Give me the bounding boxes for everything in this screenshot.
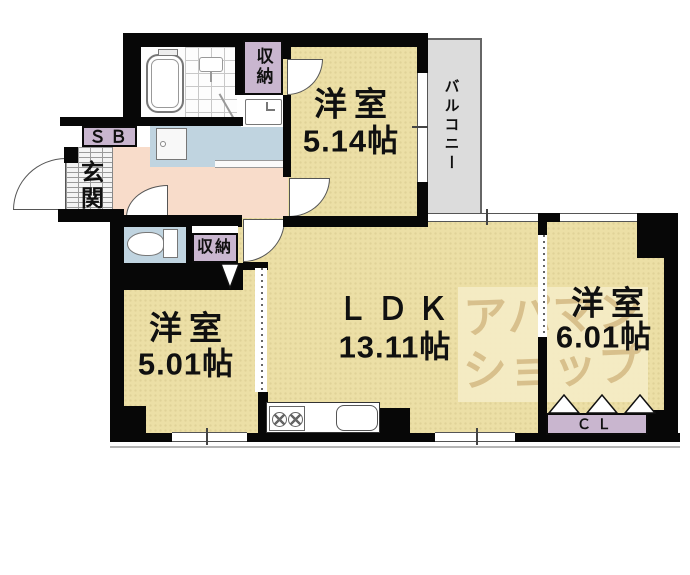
toilet-tank-icon — [163, 229, 178, 258]
washstand-faucet-icon — [266, 102, 275, 111]
partition-501-ldk — [255, 268, 267, 392]
wall-ldk-601-top — [538, 213, 547, 235]
balcony-label: バルコニー — [444, 79, 459, 174]
hallway-floor-main — [150, 167, 288, 218]
wall-bath-bottom — [60, 117, 243, 126]
entrance-door-arc — [13, 158, 66, 210]
floor-plan: アパマン ショップ — [0, 0, 690, 575]
room-514-name: 洋室 — [314, 88, 394, 121]
closet-fold-door-icon-1 — [548, 394, 580, 414]
wall-514-left-a — [283, 33, 291, 59]
storage-upper-label: 収納 — [255, 47, 272, 87]
window-tick-4 — [412, 126, 428, 128]
shoe-box-label: ＳＢ — [89, 129, 131, 146]
closet-fold-door-icon-3 — [624, 394, 656, 414]
closet-label: ＣＬ — [577, 417, 617, 431]
ldk-name: ＬＤＫ — [337, 294, 457, 325]
partition-ldk-601 — [538, 235, 547, 337]
room-501-size: 5.01帖 — [138, 349, 234, 380]
bath-faucet-icon — [158, 49, 178, 56]
window-top-601 — [560, 213, 637, 222]
window-tick-2 — [476, 428, 478, 445]
storage-lower-label: 収納 — [197, 240, 233, 256]
wall-514-balcony-a — [417, 33, 428, 73]
room-501-name: 洋室 — [149, 312, 229, 345]
wall-counter-stub — [380, 408, 410, 437]
storage-lower-fold-door-icon — [220, 263, 240, 289]
window-tick-3 — [486, 209, 488, 225]
wall-entry-left-stub — [64, 147, 78, 163]
stove-icon — [269, 406, 305, 431]
room-601-name: 洋室 — [571, 287, 651, 320]
closet-fold-door-icon-2 — [586, 394, 618, 414]
ldk-size: 13.11帖 — [339, 332, 452, 363]
window-bottom-left — [172, 432, 247, 442]
toilet-bowl-icon — [127, 232, 164, 256]
wall-bottom-1 — [118, 433, 172, 442]
washing-machine-knob — [160, 141, 166, 147]
washstand-icon — [245, 99, 282, 125]
wall-left-upper — [123, 33, 141, 125]
bathtub-icon — [146, 54, 184, 113]
kitchen-sink-icon — [336, 405, 378, 431]
entrance-label: 玄関 — [79, 160, 102, 212]
window-tick-1 — [206, 428, 208, 445]
wall-514-bottom — [283, 216, 428, 227]
room-514-size: 5.14帖 — [303, 126, 399, 157]
room-601-size: 6.01帖 — [556, 322, 652, 353]
washroom-sliding-door — [215, 160, 285, 168]
window-top-ldk — [428, 213, 540, 222]
wall-bath-right-stub — [235, 40, 243, 95]
bath-sink-icon — [199, 57, 223, 72]
window-bottom-center — [435, 432, 515, 442]
wall-514-left-b — [283, 95, 291, 177]
ground-line — [110, 446, 680, 448]
bath-sink-stem — [210, 72, 212, 82]
wall-514-balcony-b — [417, 182, 428, 227]
wall-corner-top-right — [637, 213, 678, 258]
wall-cl-right-chunk — [648, 410, 678, 442]
storage-lower-top-gap — [192, 226, 238, 233]
